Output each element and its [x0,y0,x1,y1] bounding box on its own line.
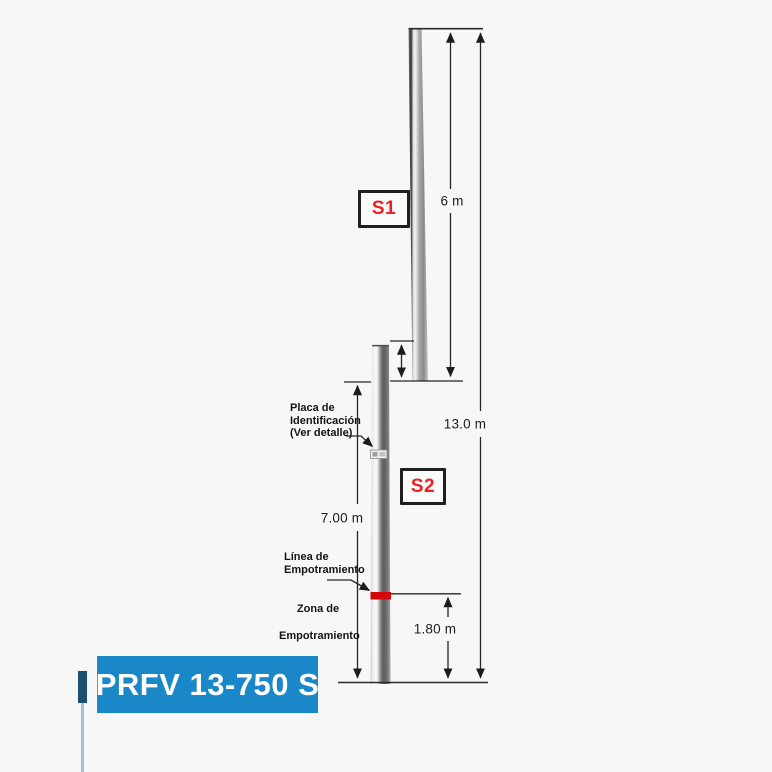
dim-label-total-length: 13.0 m [444,417,486,432]
model-banner: PRFV 13-750 S [97,656,318,713]
pole-section-s1-shape [409,28,429,381]
pole-section-s2-shape [371,345,391,684]
section-s2-box: S2 [400,468,446,505]
footer-accent-bar [78,671,87,703]
dim-label-s2-length: 7.00 m [321,511,363,526]
identification-plate-mark-1 [373,452,378,457]
section-s1-box: S1 [358,190,410,228]
annotation-placa-identificacion: Placa de Identificación (Ver detalle) [290,402,361,440]
identification-plate-mark-2 [380,452,386,457]
section-s1-label: S1 [372,198,396,220]
section-s2-label: S2 [411,476,435,498]
linea-leader-arrow [327,580,370,591]
embedment-red-band [371,592,392,600]
model-banner-label: PRFV 13-750 S [96,667,320,703]
annotation-linea-empotramiento: Línea de Empotramiento [284,551,365,576]
annotation-zona-empotramiento: Zona de Empotramiento [279,596,357,650]
dim-label-s1-length: 6 m [440,194,463,209]
dim-label-embedment-depth: 1.80 m [414,622,456,637]
pole-technical-drawing: 6 m 13.0 m 7.00 m 1.80 m Placa de Identi… [0,0,772,772]
footer-vertical-line [81,703,84,772]
